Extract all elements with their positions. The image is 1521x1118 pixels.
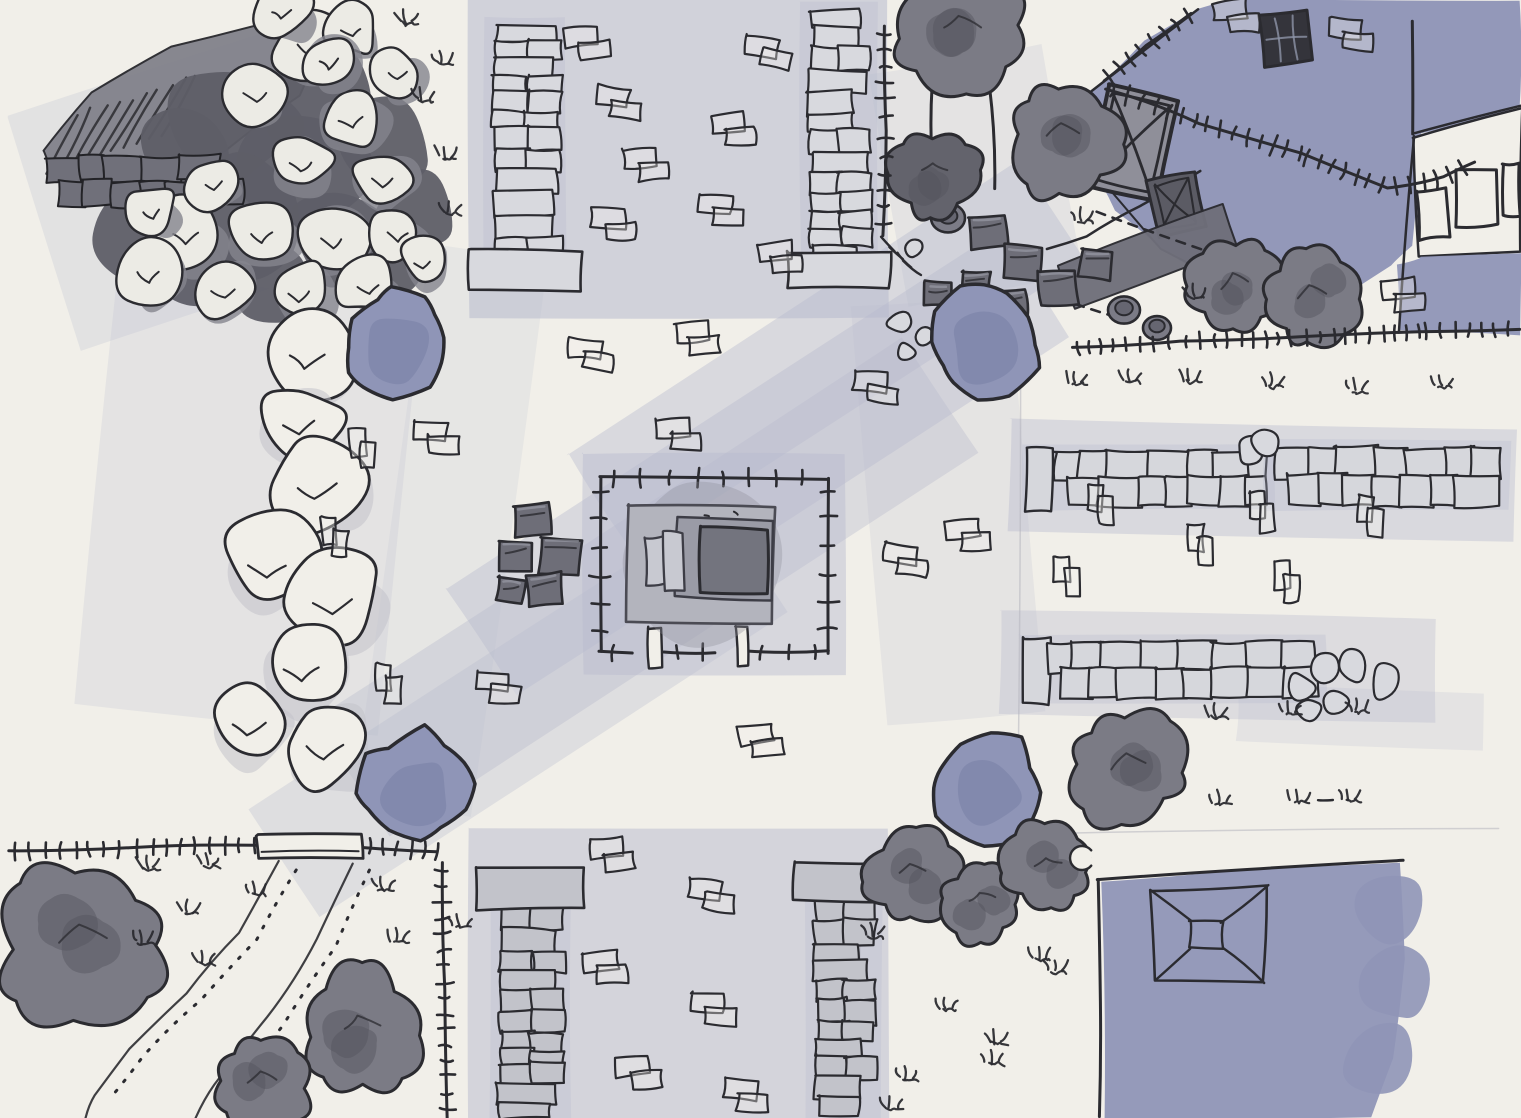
fence-post [437,964,449,965]
grass-tuft [448,201,449,212]
wall-brick [1246,666,1285,697]
grass-tuft [889,1096,890,1107]
wall-brick [838,45,871,71]
cobble [751,738,785,757]
crate [1037,269,1079,307]
monument-step [663,531,685,591]
cobble [1394,293,1426,312]
cobble [638,162,669,182]
grass-tuft [1287,713,1302,714]
wall-brick [1176,640,1216,670]
cobble [1342,32,1373,52]
field-gate [256,834,363,859]
gate-post [647,627,662,669]
fence-post [879,174,891,175]
fence-post [748,468,749,486]
grass-tuft [1187,369,1188,380]
cobble [712,207,743,225]
window [1502,163,1520,217]
wall-brick [528,125,562,152]
wall-brick [1287,473,1321,506]
crate [499,541,532,571]
grass-tuft [1055,961,1056,970]
fence-post [820,516,837,517]
fence-post [815,645,816,658]
fence-post [1153,337,1154,351]
cobble [687,335,721,355]
wall-brick [815,1039,862,1057]
grass-tuft [991,1050,992,1064]
fence-post [591,518,607,519]
wall-brick [493,190,555,218]
tree-canopy-shade [1052,114,1091,157]
barrel-top [1115,301,1133,315]
fence-post [435,885,446,886]
monument-core [699,526,768,594]
cobble [630,1070,662,1090]
tree-trunk [931,86,932,145]
wall-base [468,249,582,291]
wall-brick [527,90,562,114]
fence-post [254,838,255,853]
fence-post [1481,323,1482,337]
fence-post [118,841,120,858]
fence-post [194,837,195,854]
fence-post [225,837,226,855]
wall-brick [818,1095,860,1116]
fence-post [437,1015,453,1016]
cobble [736,1093,769,1112]
fence-post [592,631,607,633]
wall-brick [1453,476,1500,509]
chimney [1258,9,1313,67]
wall-brick [837,128,871,153]
wall-brick [1210,666,1251,697]
fence-post [1406,326,1407,341]
window [1417,188,1451,241]
wall-brick [1116,667,1159,699]
cobble [725,127,757,146]
wall-brick [1470,446,1501,479]
fence-post [640,469,641,488]
fence-post [592,547,607,548]
wall-brick [812,152,868,174]
wall-cap [476,867,584,910]
window [1456,170,1498,228]
fence-post [1306,330,1307,346]
wall-brick [1181,669,1212,700]
cobble [428,434,460,454]
fence-post [776,470,777,486]
loose-brick [332,528,349,557]
cobble [605,222,636,241]
fence-post [438,1028,454,1029]
roof-ridge [1412,21,1413,134]
wall-brick [498,1102,551,1118]
grass-tuft [202,951,203,963]
fence-post [592,603,610,604]
boulder [268,309,357,402]
cliff-brick [79,154,105,180]
fence-post [722,472,723,486]
fence-post [877,34,890,36]
crate [968,214,1009,250]
fence-post [1384,326,1385,342]
map-canvas [0,0,1521,1118]
fence-post [876,82,893,83]
cobble [603,852,636,873]
loose-brick [359,442,375,468]
cobble [702,891,734,913]
fence-post [878,49,891,50]
fence-post [1125,338,1126,351]
fence-post [818,602,839,603]
loose-brick [1367,508,1384,538]
fence-post [1112,340,1113,352]
fence-post [441,1094,452,1095]
loose-brick [384,675,402,703]
cobble [960,532,990,551]
fence-post [789,645,790,659]
cobble [1227,13,1260,32]
fence-post [613,471,614,487]
fence-post [1226,332,1227,348]
cobble [489,684,522,704]
fence-post [137,840,138,858]
fence-post [820,575,836,576]
fence-post [1089,341,1090,353]
fence-post [1345,329,1346,344]
crate [495,576,526,604]
fence-post [876,98,895,99]
cliff-brick [82,179,113,207]
grass-tuft [1080,207,1081,220]
grass-tuft [1039,947,1040,960]
boulder [273,624,346,700]
fence-post [238,839,239,852]
grass-tuft [420,87,422,100]
fence-post [878,190,893,191]
grass-tuft [1288,701,1289,712]
loose-brick [1098,496,1114,526]
fence-post [15,843,16,861]
wall-brick [1088,667,1118,697]
fence-post [878,138,894,139]
fence-post [166,840,167,856]
cobble [578,40,611,61]
fence-post [153,839,154,854]
fence-post [209,838,210,854]
fence-post [1168,336,1170,349]
fence-post [593,492,608,493]
loose-brick [1197,536,1213,565]
crate [525,571,565,608]
monument-fence [601,478,602,652]
fence-post [1334,329,1335,344]
cobble [770,255,803,273]
fence-post [382,839,383,855]
fence-post [1369,328,1370,343]
wall-end [1025,447,1053,512]
fence-post [880,66,891,67]
fence-post [103,842,104,856]
monument-fence [599,651,632,653]
crate-box [495,576,526,604]
cliff-brick [45,158,81,183]
hand-drawn-map [0,0,1521,1118]
cobble [597,965,629,985]
tree-canopy-shade [933,8,974,57]
loose-brick [1064,568,1080,597]
fence-post [1394,326,1395,341]
crate [1078,248,1114,281]
fence-post [1186,336,1187,347]
monument-fence [664,652,715,653]
crate-top [931,286,946,287]
loose-brick [1283,574,1300,603]
fence-post [1199,332,1200,349]
wall-brick [1187,475,1223,506]
grass-tuft [444,147,445,159]
grass-tuft [1356,699,1357,710]
wall-brick [841,226,873,248]
fence-post [1508,322,1509,336]
fence-post [1425,323,1427,339]
monument-tick [705,515,710,516]
cliff-brick [140,157,182,183]
stone [1311,653,1339,683]
fence-post [802,470,803,484]
fence-post [439,997,449,998]
cobble [670,431,701,450]
wall-brick [530,1060,565,1083]
wall-brick [1399,475,1435,508]
wall-brick [1147,451,1191,480]
wall-brick [839,190,872,212]
bucket-mark [1070,846,1091,870]
loose-brick [1259,504,1275,534]
wall-brick [531,1009,566,1032]
barrel-top [1149,320,1164,333]
crate-top [504,544,529,545]
fence-post [821,491,835,492]
cobble [705,1007,737,1027]
crate [512,502,552,538]
grass-tuft [1347,790,1349,801]
grass-tuft [905,1066,906,1079]
fence-post [1320,332,1321,342]
fence-post [876,223,892,224]
fence-post [1355,329,1356,343]
